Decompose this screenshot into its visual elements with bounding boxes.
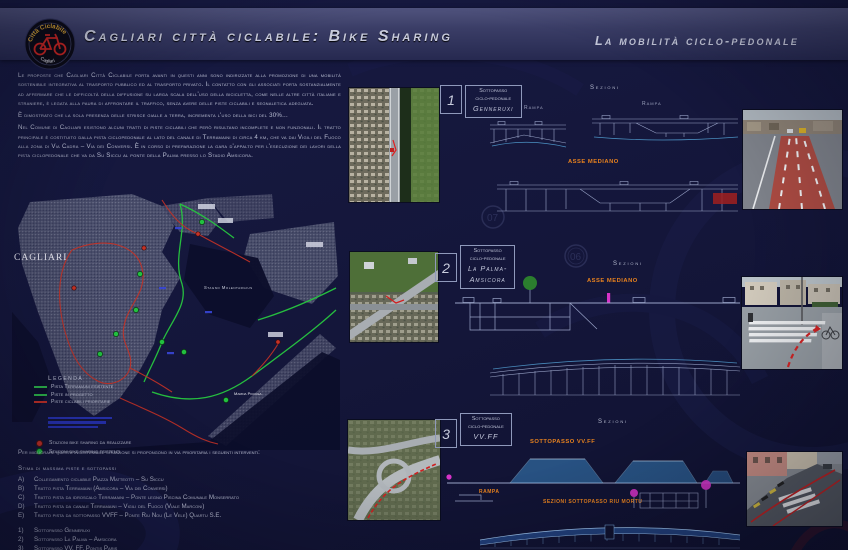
section-drawing-3 [435, 413, 745, 550]
aerial-photo-la-palma [350, 252, 438, 342]
proposals-heading: Stima di massima piste e sottopassi [18, 465, 354, 474]
legend-swatch-green [34, 386, 47, 388]
car [823, 464, 832, 469]
map-lagoon-label: Stagno Molentargius [204, 285, 253, 290]
tree-symbol-magenta [446, 474, 451, 479]
intro-text-block: Le proposte che Cagliari Città Ciclabile… [18, 71, 341, 164]
association-logo: Città Ciclabile Cagliari [24, 18, 76, 70]
section-drawing-1 [440, 85, 745, 237]
legend-item: Piste in progetto [34, 392, 194, 398]
aerial-photo-genneruxi [349, 88, 439, 202]
legend-note-line [48, 421, 106, 424]
logo-graphic: Città Ciclabile Cagliari [24, 18, 76, 70]
map-city-label: CAGLIARI [14, 253, 67, 263]
proposal-item: A)Collegamento ciclabile Piazza Matteott… [18, 476, 354, 485]
proposal-item: C)Tratto pista da idroscalo Terramaini –… [18, 494, 354, 503]
legend-note-line [48, 417, 112, 420]
tree-symbol-magenta [630, 489, 638, 497]
proposals-intro: Per migliorare questa insostenibile situ… [18, 449, 354, 458]
ramp-mounds [510, 459, 733, 483]
legend-note-line [48, 426, 98, 429]
viaduct-section [480, 525, 740, 548]
intro-paragraph: È dimostrato che la sola presenza delle … [18, 111, 341, 120]
proposal-item: D)Tratto pista da canale Terramaini – Vi… [18, 503, 354, 512]
aerial-photo-vvff-interchange [348, 420, 440, 520]
street-photo-curve [747, 452, 842, 526]
proposal-item: B)Tratto pista Terramaini (Amsicora – Vi… [18, 485, 354, 494]
street-photo-crossing [742, 277, 842, 369]
map-marina-label: Marina Piccola [234, 391, 261, 396]
panel-sottopasso-vvff: 3 Sottopassociclo-pedonale VV.FF Sezioni… [435, 413, 745, 550]
section-drawing-2 [435, 245, 745, 403]
page-subtitle: La mobilità ciclo-pedonale [595, 34, 799, 48]
car [799, 128, 806, 133]
proposals-block: Per migliorare questa insostenibile situ… [18, 449, 354, 550]
underpass-item: 2)Sottopasso La Palma – Amsicora [18, 536, 354, 545]
legend-swatch-green [34, 394, 47, 396]
intro-paragraph: Nel Comune di Cagliari esistono alcuni t… [18, 123, 341, 160]
pedestrian-symbol [607, 293, 610, 303]
panel-sottopasso-la-palma-amsicora: 2 Sottopassociclo-pedonale La Palma-Amsi… [435, 245, 745, 403]
poster-board: 07 06 Città Ciclabile [0, 0, 848, 550]
legend-station-item: Stazioni bike sharing da realizzare [34, 440, 194, 447]
cyclist [748, 313, 753, 322]
page-title: Cagliari città ciclabile: Bike Sharing [84, 28, 453, 46]
underpass-item: 3)Sottopasso VV. FF. Pontis Paris [18, 545, 354, 550]
car [787, 129, 793, 133]
legend-swatch-red [34, 401, 47, 403]
tree-symbol [523, 276, 537, 290]
red-highlight-box [713, 193, 737, 204]
legend-item: Piste ciclabili prioritarie [34, 399, 194, 405]
street-photo-bike-lanes [743, 110, 842, 209]
underpass-item: 1)Sottopasso Genneruxi [18, 527, 354, 536]
station-dot-red [36, 440, 43, 447]
header-bar: Città Ciclabile Cagliari Cagliari città … [0, 8, 848, 60]
legend-title: Legenda [48, 375, 194, 382]
intro-paragraph: Le proposte che Cagliari Città Ciclabile… [18, 71, 341, 108]
panel-sottopasso-genneruxi: 1 Sottopassociclo-pedonale Genneruxi Sez… [440, 85, 745, 237]
proposal-item: E)Tratto pista da sottopasso VVFF – Pont… [18, 512, 354, 521]
map-legend: Legenda Pista Terramaini esistente Piste… [34, 375, 194, 457]
legend-item: Pista Terramaini esistente [34, 384, 194, 390]
tree-symbol-magenta [701, 480, 711, 490]
